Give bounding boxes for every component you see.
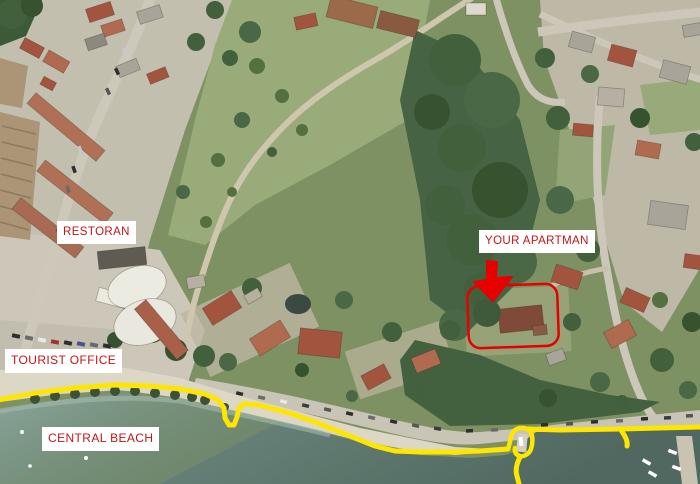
map-image: RESTORAN YOUR APARTMAN TOURIST OFFICE CE…: [0, 0, 700, 484]
label-tourist-office: TOURIST OFFICE: [5, 349, 122, 373]
label-restoran: RESTORAN: [57, 221, 136, 244]
apartment-building: [498, 305, 548, 336]
label-central-beach: CENTRAL BEACH: [42, 427, 159, 451]
label-your-apartman: YOUR APARTMAN: [479, 230, 595, 253]
